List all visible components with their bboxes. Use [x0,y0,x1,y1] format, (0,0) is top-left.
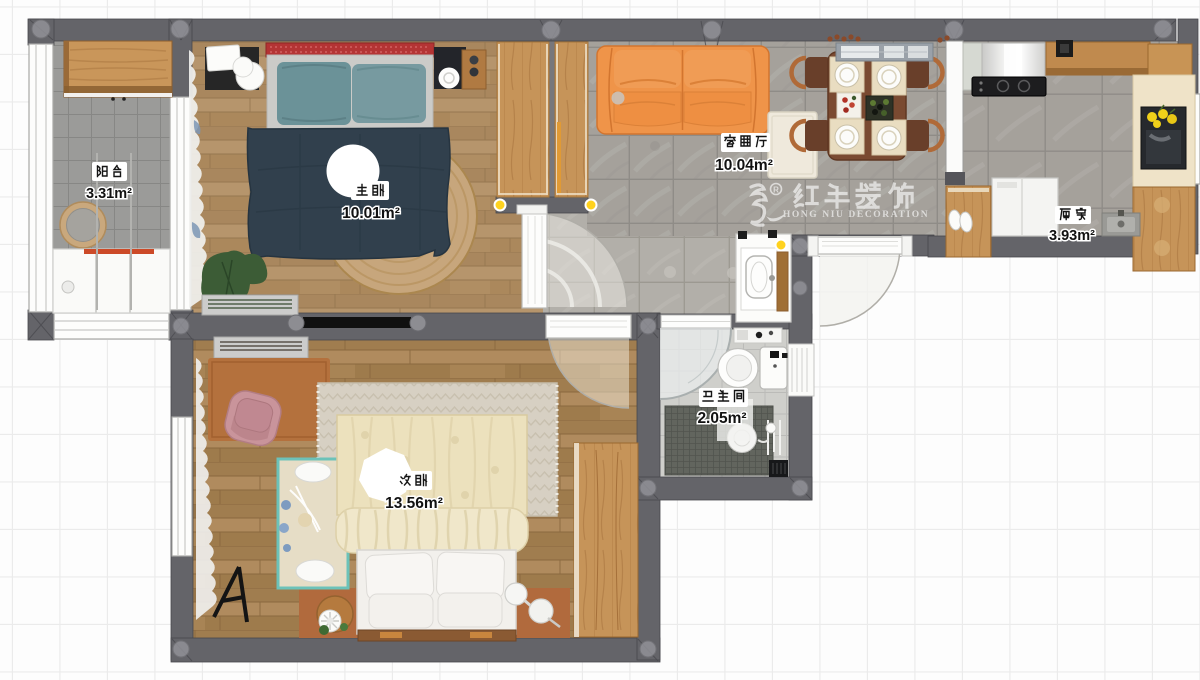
svg-text:2.05m²: 2.05m² [697,410,746,427]
svg-text:R: R [773,186,779,195]
svg-text:3.31m²: 3.31m² [86,186,132,202]
svg-text:10.04m²: 10.04m² [715,157,773,174]
svg-text:13.56m²: 13.56m² [385,495,443,512]
svg-text:10.01m²: 10.01m² [342,205,400,222]
svg-text:HONG NIU DECORATION: HONG NIU DECORATION [783,210,929,220]
svg-text:3.93m²: 3.93m² [1049,228,1095,244]
